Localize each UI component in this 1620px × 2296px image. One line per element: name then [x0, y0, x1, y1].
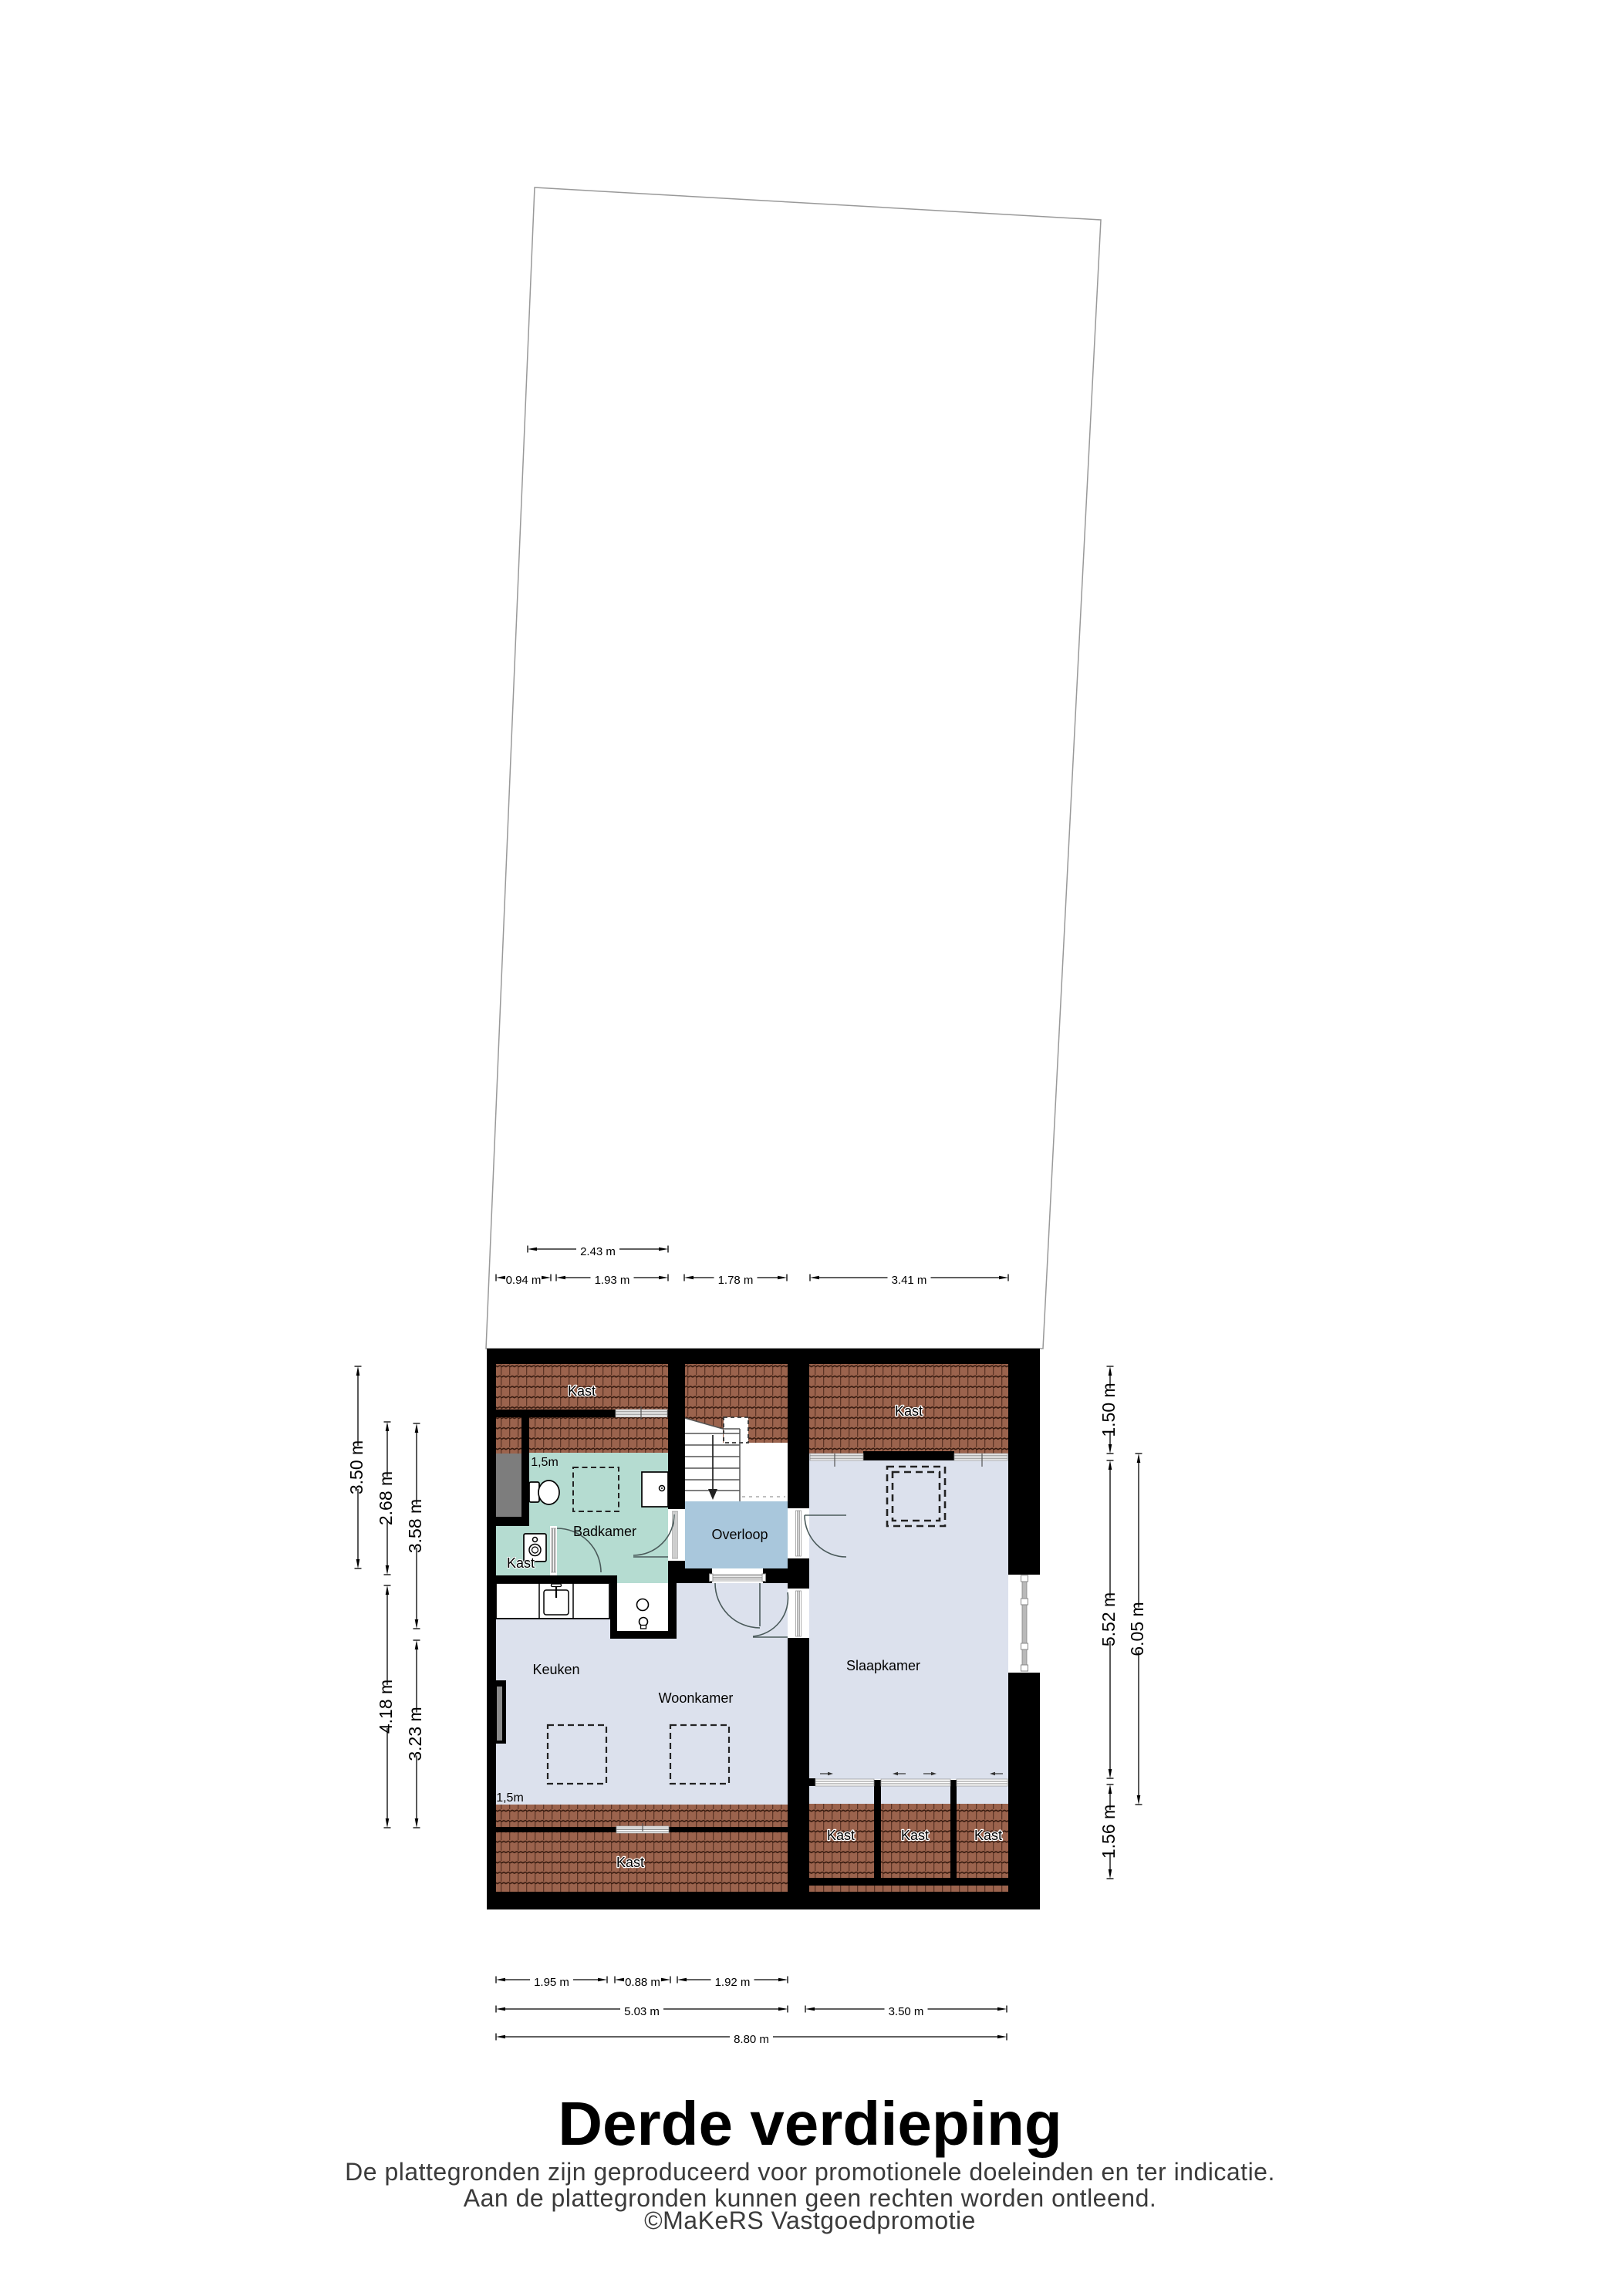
svg-text:2.68 m: 2.68 m: [376, 1471, 396, 1525]
svg-text:Derde verdieping: Derde verdieping: [558, 2089, 1062, 2158]
svg-text:Kast: Kast: [901, 1828, 929, 1843]
svg-text:Kast: Kast: [507, 1555, 535, 1571]
svg-text:3.58 m: 3.58 m: [405, 1499, 425, 1553]
svg-text:1,5m: 1,5m: [496, 1791, 524, 1805]
svg-text:1.50 m: 1.50 m: [1099, 1383, 1119, 1437]
svg-text:1.93 m: 1.93 m: [595, 1274, 630, 1287]
svg-text:Kast: Kast: [974, 1828, 1002, 1843]
svg-text:8.80 m: 8.80 m: [734, 2033, 769, 2046]
svg-text:Slaapkamer: Slaapkamer: [846, 1658, 920, 1673]
svg-text:5.03 m: 5.03 m: [624, 2005, 660, 2018]
svg-text:3.50 m: 3.50 m: [889, 2005, 924, 2018]
svg-text:5.52 m: 5.52 m: [1099, 1592, 1119, 1646]
svg-text:Kast: Kast: [895, 1403, 923, 1419]
svg-text:Overloop: Overloop: [711, 1527, 768, 1542]
svg-text:Kast: Kast: [568, 1383, 596, 1399]
svg-text:3.23 m: 3.23 m: [405, 1707, 425, 1761]
svg-text:3.41 m: 3.41 m: [892, 1274, 927, 1287]
svg-text:0.94 m: 0.94 m: [506, 1274, 542, 1287]
svg-text:De plattegronden zijn geproduc: De plattegronden zijn geproduceerd voor …: [345, 2158, 1275, 2186]
svg-text:1.95 m: 1.95 m: [534, 1976, 569, 1989]
svg-text:Kast: Kast: [827, 1828, 855, 1843]
svg-text:0.88 m: 0.88 m: [625, 1976, 660, 1989]
svg-text:Woonkamer: Woonkamer: [659, 1690, 734, 1706]
svg-text:Kast: Kast: [616, 1855, 644, 1870]
svg-text:1.92 m: 1.92 m: [715, 1976, 751, 1989]
svg-text:Keuken: Keuken: [532, 1662, 579, 1677]
svg-text:Badkamer: Badkamer: [573, 1524, 636, 1539]
svg-text:6.05 m: 6.05 m: [1127, 1602, 1147, 1656]
svg-text:1.56 m: 1.56 m: [1099, 1805, 1119, 1859]
svg-text:©MaKeRS Vastgoedpromotie: ©MaKeRS Vastgoedpromotie: [644, 2207, 976, 2234]
svg-text:2.43 m: 2.43 m: [580, 1245, 616, 1258]
svg-text:1,5m: 1,5m: [531, 1456, 559, 1469]
svg-text:4.18 m: 4.18 m: [376, 1680, 396, 1734]
svg-text:1.78 m: 1.78 m: [718, 1274, 754, 1287]
svg-text:3.50 m: 3.50 m: [346, 1440, 366, 1494]
